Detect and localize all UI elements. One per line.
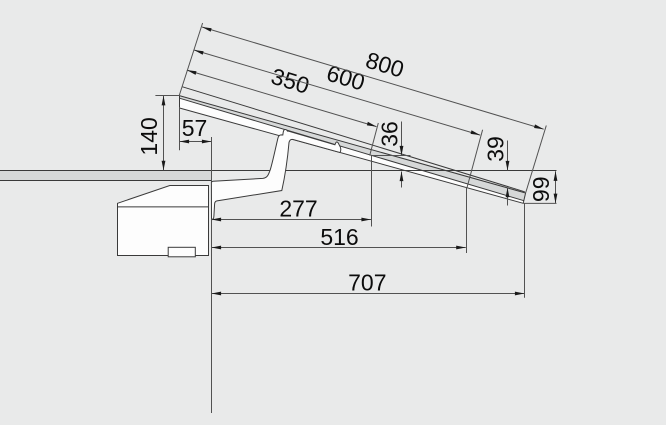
svg-text:57: 57 <box>182 115 208 141</box>
svg-text:516: 516 <box>320 224 358 250</box>
svg-text:36: 36 <box>377 121 403 147</box>
svg-text:99: 99 <box>528 177 554 203</box>
svg-text:140: 140 <box>136 117 162 155</box>
svg-text:39: 39 <box>483 136 509 162</box>
svg-text:707: 707 <box>348 269 386 295</box>
svg-text:277: 277 <box>279 196 317 222</box>
